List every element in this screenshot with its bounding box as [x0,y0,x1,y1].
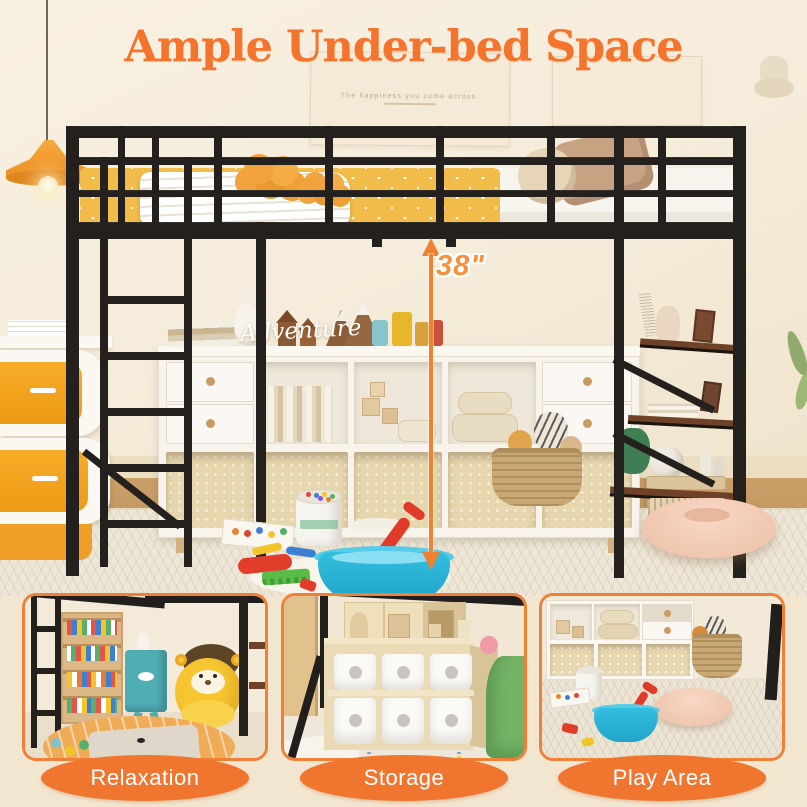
toy-ball [51,738,61,748]
pen-cup [458,620,470,640]
pink-ball [480,636,498,654]
beam-bracket [372,239,382,247]
bin-dot [397,714,410,727]
lion-eye [199,674,203,678]
picture-frame [692,309,715,343]
small-tin [415,322,429,346]
ladder-rung [31,668,61,674]
toy-block [362,398,380,416]
teal-cup [372,320,388,346]
measure-arrow-line [429,254,433,554]
unit-shelf [328,690,474,696]
wicker-basket [692,634,742,678]
lion-ear [175,654,187,666]
dresser-books [8,320,66,336]
pink-pouf [642,498,776,558]
ladder-rail [184,157,192,567]
pouf-dimple [684,508,730,522]
beam-bracket [446,239,456,247]
bin-dot [349,714,362,727]
drawer-knob [206,377,215,386]
ladder-rung [100,408,192,416]
guardrail-bar [547,126,555,239]
play-area-scene [542,596,782,758]
cabinet-face [138,672,154,681]
feature-badge-label: Storage [364,765,445,791]
hat-box [600,610,634,624]
bed-leg [614,126,624,578]
books-row [67,620,117,635]
crayons [306,492,311,497]
ladder-rung [31,626,61,632]
bottle [714,458,724,478]
dresser-top [0,336,112,348]
bunny-figurine [137,632,149,652]
bin-dot [397,666,410,679]
teal-cabinet [125,650,167,712]
coloring-book-art [232,528,239,535]
plant-leaf [793,371,807,411]
guardrail-bar [325,126,333,239]
page-title: Ample Under-bed Space [0,22,807,72]
guardrail-bar [658,126,666,239]
plant-leaf [783,329,807,377]
books-row [67,672,117,687]
figurine [432,320,443,346]
bed-beam [22,593,165,609]
toy-ball [65,746,75,756]
cube-books [268,386,332,442]
lion-eye [213,674,217,678]
pink-pouf [654,688,732,726]
bed-post [239,596,248,736]
toy-block [572,626,584,638]
hutch-decor [350,612,368,638]
bed-platform-beam [66,222,746,239]
bin-dot [445,666,458,679]
feature-badge-storage: Storage [300,755,508,801]
headboard-bar [118,126,125,232]
toy-ball [79,740,89,750]
feature-badge-play-area: Play Area [558,755,766,801]
room-scene: The happiness you come across. [0,0,807,596]
books-row [67,646,117,661]
product-infographic: The happiness you come across. [0,0,807,807]
feature-panel-relaxation [22,593,268,761]
decal-paw [754,78,794,98]
guardrail-bar [214,126,222,239]
ladder-rail [100,157,108,567]
shelf-sliver [249,682,265,689]
yellow-tin [392,312,412,346]
toy-block [556,620,570,634]
bed-guard-rail [66,190,746,197]
guardrail-bar [436,126,444,239]
arrow-down-icon [422,552,440,570]
headboard-bar [152,126,159,232]
ladder-rung [100,296,192,304]
bin-dot [445,714,458,727]
bed-top-rail [66,126,746,138]
bed-guard-rail [66,157,746,165]
wicker-basket [492,448,582,506]
wall-poster-rule [384,103,436,105]
desk-side [284,596,318,716]
drawer-knob [664,610,671,617]
toy-block [370,382,385,397]
hat-box [598,624,638,639]
ladder-rung [100,352,192,360]
drawer-knob [583,377,592,386]
green-chair [486,656,527,758]
hutch-box [388,614,410,638]
under-bed-height-label: 38" [436,250,485,283]
bin-dot [349,666,362,679]
drawer-knob [583,419,592,428]
coloring-book-art [556,694,561,699]
drawer-knob [664,627,671,634]
dried-grass [638,291,657,336]
hat-box [458,392,512,414]
feature-panel-storage [281,593,527,761]
wall-poster-text: The happiness you come across. [341,92,480,100]
drawer-knob [206,419,215,428]
feature-panel-play-area [539,593,785,761]
dresser-handle [30,388,56,393]
cube-storage-top [158,346,640,357]
lamp-bulb [38,176,58,196]
books-row [67,698,117,713]
feature-badge-label: Relaxation [91,765,200,791]
dresser-handle [32,476,58,481]
toy-block [382,408,398,424]
fabric-bin [646,644,690,676]
lion-nose [205,680,211,685]
bucket-label [300,520,338,529]
ladder-rung [31,710,61,716]
doll [656,306,680,344]
mini-drawers [428,610,454,638]
wall-shelf [628,415,746,430]
bed-leg [256,222,266,572]
crayon-bucket-top [296,489,342,504]
feature-badge-label: Play Area [613,765,712,791]
fabric-bin [598,644,642,676]
feature-badge-relaxation: Relaxation [41,755,249,801]
shelf-books [648,404,698,417]
mountain-cap [356,302,370,315]
relaxation-scene [25,596,265,758]
bucket-top [578,666,602,674]
shelf-sliver [249,642,265,649]
storage-scene [284,596,524,758]
blue-bowl-inner [332,551,436,564]
mat-dot [137,738,145,743]
bed-leg [66,126,79,576]
